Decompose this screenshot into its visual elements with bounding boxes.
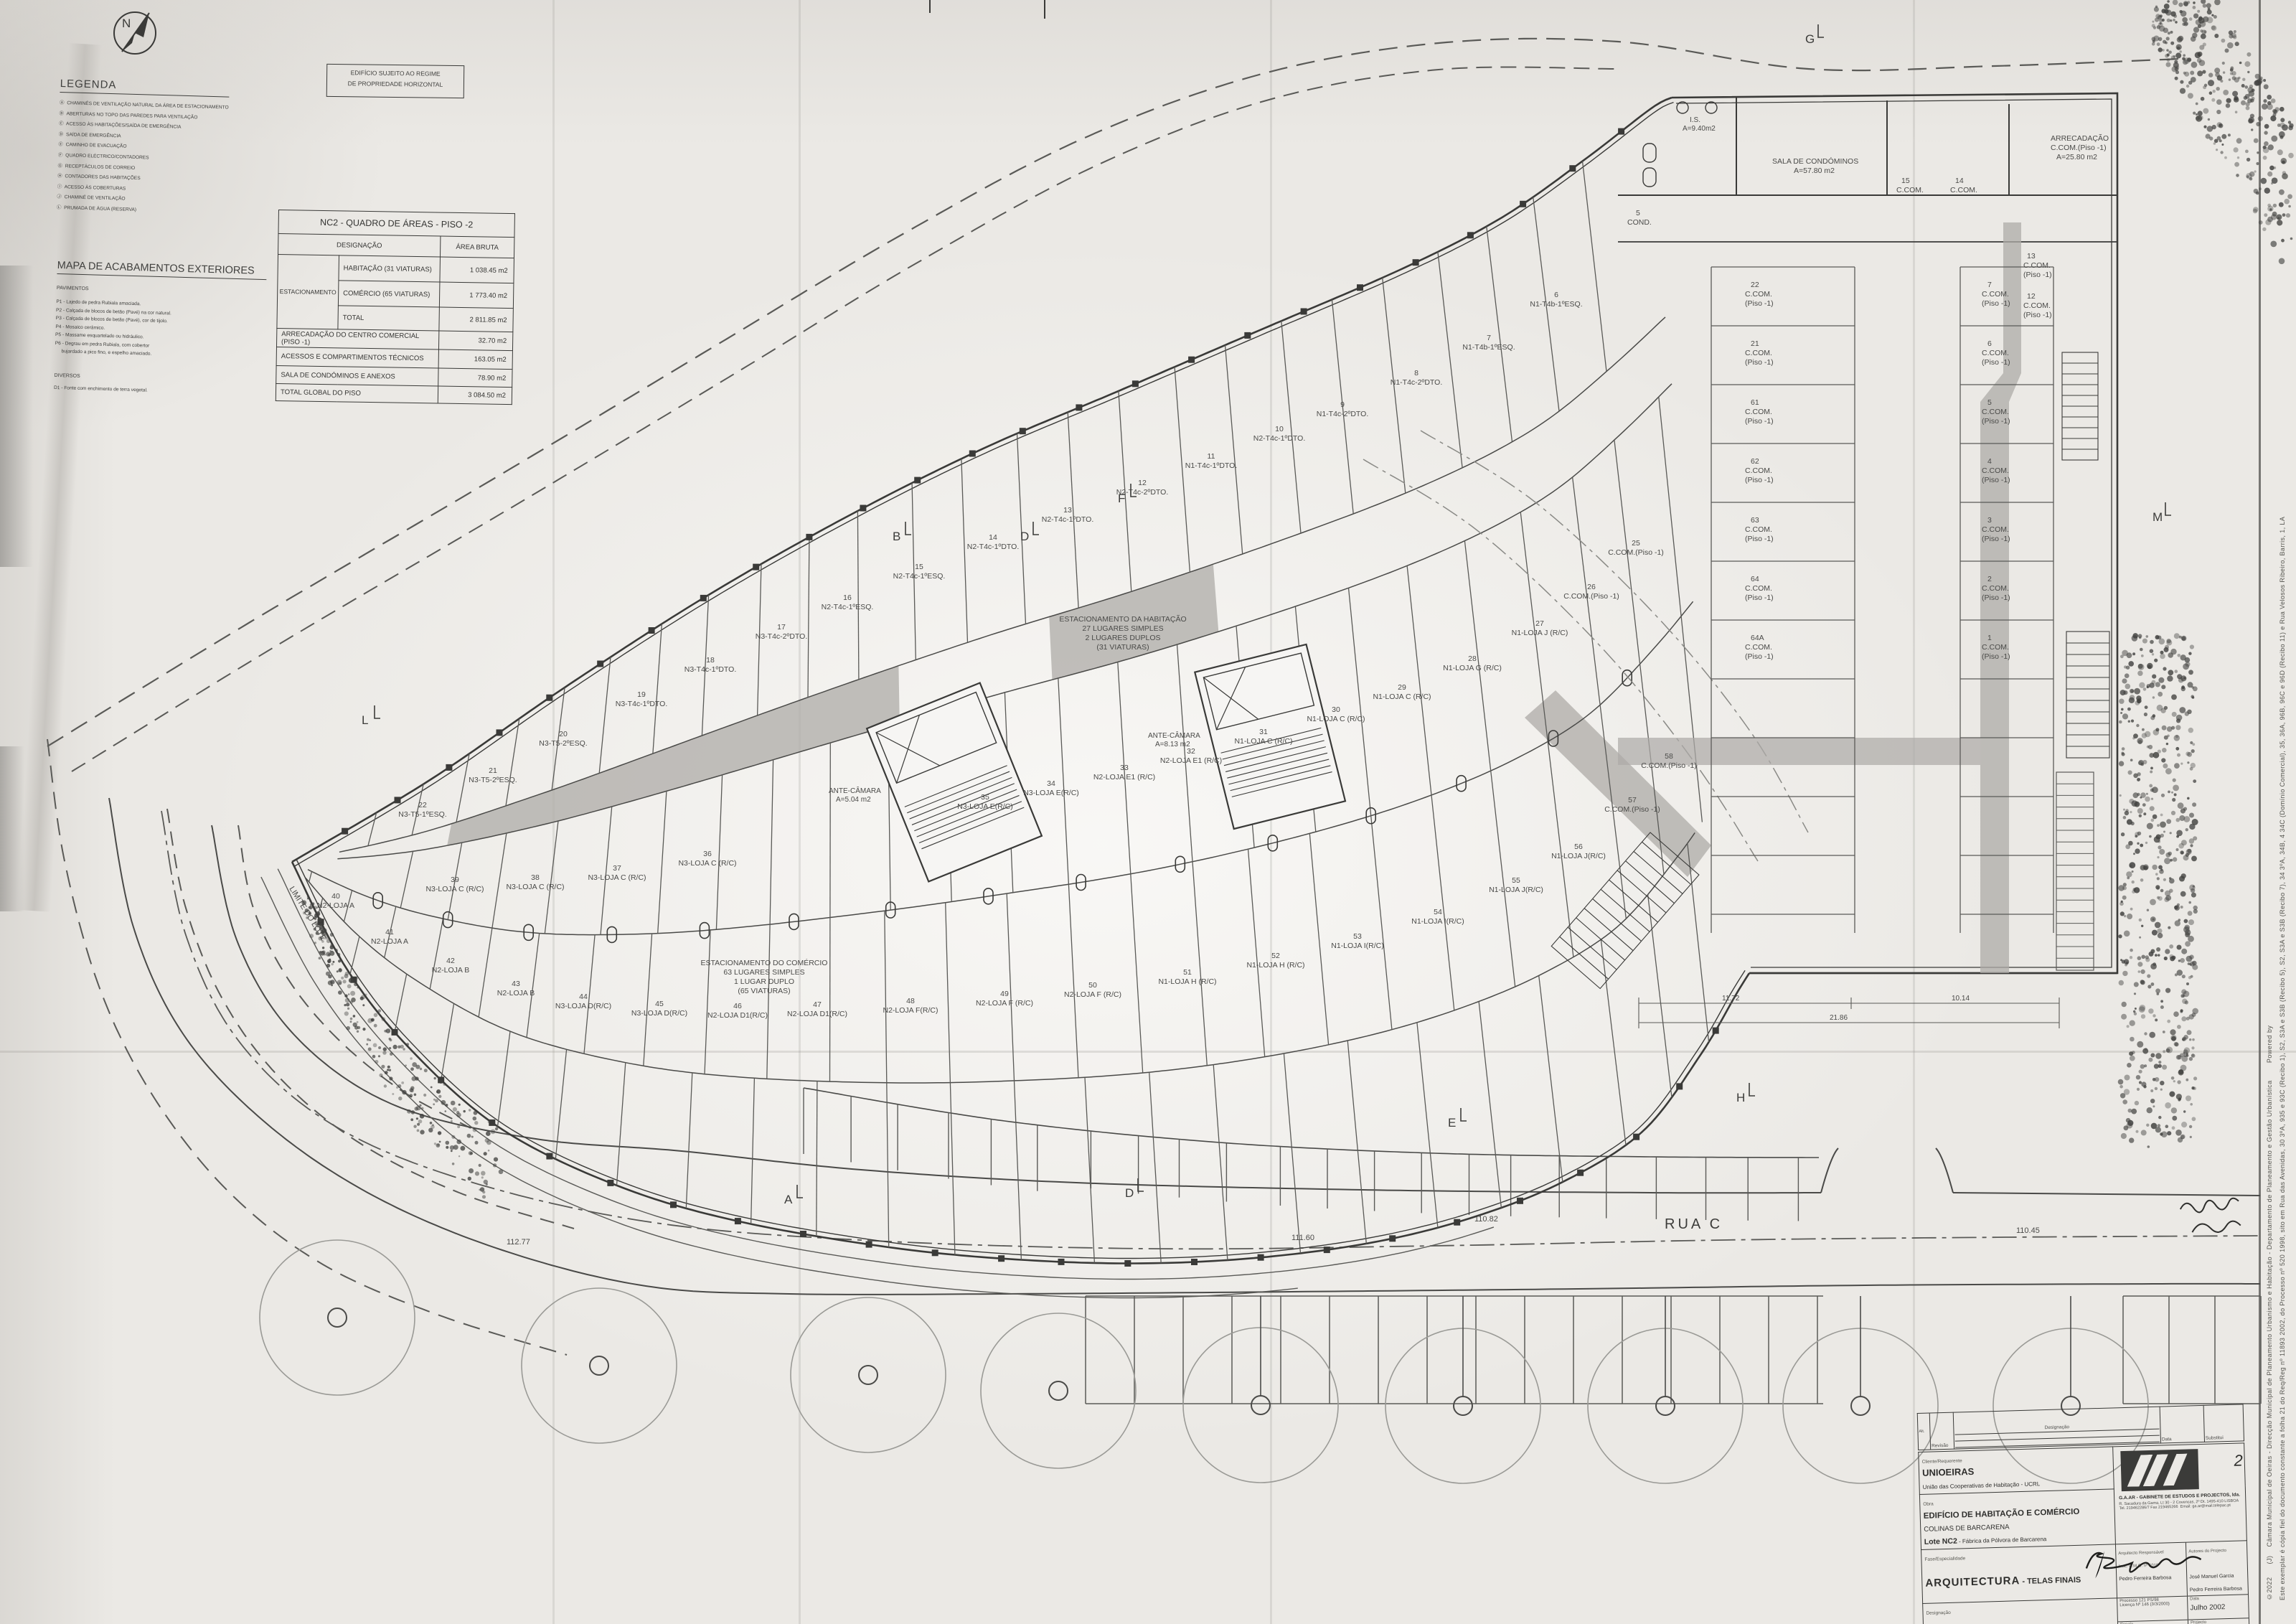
svg-text:N2-LOJA A: N2-LOJA A — [371, 937, 408, 946]
svg-text:C.COM.: C.COM. — [1982, 584, 2009, 593]
svg-text:ESTACIONAMENTO DA HABITAÇÃO: ESTACIONAMENTO DA HABITAÇÃO — [1059, 614, 1186, 624]
svg-text:14: 14 — [989, 533, 997, 542]
svg-text:C.COM.: C.COM. — [1950, 186, 1977, 194]
svg-text:30: 30 — [1332, 705, 1340, 714]
svg-text:53: 53 — [1353, 932, 1362, 941]
svg-text:11.72: 11.72 — [1722, 995, 1740, 1003]
svg-text:62: 62 — [1751, 457, 1759, 466]
svg-text:(Piso -1): (Piso -1) — [1745, 358, 1774, 367]
svg-text:N2-LOJA D1(R/C): N2-LOJA D1(R/C) — [787, 1010, 847, 1018]
svg-text:34: 34 — [1047, 779, 1055, 788]
svg-text:C.COM.(Piso -1): C.COM.(Piso -1) — [1608, 548, 1664, 557]
svg-text:A=9.40m2: A=9.40m2 — [1683, 125, 1716, 133]
svg-text:N1-LOJA C (R/C): N1-LOJA C (R/C) — [1373, 693, 1431, 701]
svg-text:22: 22 — [1751, 281, 1759, 289]
svg-text:32: 32 — [1187, 747, 1195, 756]
svg-text:N3-T4c-2ºDTO.: N3-T4c-2ºDTO. — [756, 632, 808, 641]
svg-text:C.COM.: C.COM. — [1982, 290, 2009, 299]
svg-text:N1-T4c-2ºDTO.: N1-T4c-2ºDTO. — [1317, 410, 1369, 418]
svg-text:C.COM.: C.COM. — [1745, 643, 1772, 652]
svg-text:(Piso -1): (Piso -1) — [2023, 311, 2052, 319]
svg-text:SALA DE CONDÓMINOS: SALA DE CONDÓMINOS — [1772, 156, 1858, 166]
svg-text:C.COM.: C.COM. — [1745, 466, 1772, 475]
svg-text:111.60: 111.60 — [1291, 1234, 1314, 1242]
svg-text:C.COM.: C.COM. — [1896, 186, 1924, 194]
svg-text:A=5.04 m2: A=5.04 m2 — [836, 796, 871, 804]
svg-text:N2-T4c-1ºDTO.: N2-T4c-1ºDTO. — [1042, 515, 1094, 524]
svg-text:50: 50 — [1088, 981, 1097, 990]
svg-text:2 LUGARES DUPLOS: 2 LUGARES DUPLOS — [1085, 634, 1160, 642]
svg-text:1 LUGAR DUPLO: 1 LUGAR DUPLO — [734, 977, 794, 986]
svg-text:35: 35 — [981, 793, 989, 802]
svg-text:N1-LOJA H (R/C): N1-LOJA H (R/C) — [1246, 961, 1304, 970]
svg-text:C.COM.(Piso -1): C.COM.(Piso -1) — [1604, 805, 1660, 814]
svg-text:C.COM.: C.COM. — [1982, 349, 2009, 357]
svg-text:N1-T4c-2ºDTO.: N1-T4c-2ºDTO. — [1391, 378, 1443, 387]
svg-text:21.86: 21.86 — [1830, 1014, 1848, 1022]
svg-text:54: 54 — [1434, 908, 1442, 916]
svg-text:C.COM.(Piso -1): C.COM.(Piso -1) — [2051, 144, 2107, 152]
svg-text:N1-T4c-1ºDTO.: N1-T4c-1ºDTO. — [1185, 461, 1238, 470]
svg-text:N2-LOJA F (R/C): N2-LOJA F (R/C) — [1064, 990, 1121, 999]
svg-text:N3-T4c-1ºDTO.: N3-T4c-1ºDTO. — [684, 665, 737, 674]
svg-text:N1-T4b-1ºESQ.: N1-T4b-1ºESQ. — [1462, 343, 1515, 352]
svg-text:B: B — [893, 530, 900, 543]
svg-text:(Piso -1): (Piso -1) — [1982, 417, 2010, 426]
svg-text:3: 3 — [1987, 516, 1992, 525]
svg-text:29: 29 — [1398, 683, 1406, 692]
svg-text:1: 1 — [1987, 634, 1992, 642]
svg-text:N2-LOJA E1 (R/C): N2-LOJA E1 (R/C) — [1160, 756, 1222, 765]
svg-text:N1-LOJA J(R/C): N1-LOJA J(R/C) — [1551, 852, 1606, 860]
svg-text:56: 56 — [1574, 842, 1583, 851]
svg-text:N2-LOJA B: N2-LOJA B — [432, 966, 470, 975]
svg-text:12: 12 — [1138, 479, 1147, 487]
svg-text:(Piso -1): (Piso -1) — [1982, 652, 2010, 661]
svg-text:H: H — [1736, 1091, 1745, 1104]
svg-text:N3-LOJA C (R/C): N3-LOJA C (R/C) — [425, 885, 484, 893]
svg-text:(Piso -1): (Piso -1) — [1745, 593, 1774, 602]
svg-text:C.COM.: C.COM. — [1982, 408, 2009, 416]
svg-text:N2-LOJA E1 (R/C): N2-LOJA E1 (R/C) — [1093, 773, 1155, 782]
svg-text:N3-LOJA C (R/C): N3-LOJA C (R/C) — [588, 873, 646, 882]
svg-text:5: 5 — [1987, 398, 1992, 407]
svg-text:44: 44 — [579, 992, 588, 1001]
svg-text:COND.: COND. — [1627, 218, 1652, 227]
svg-text:48: 48 — [906, 997, 915, 1005]
svg-text:(Piso -1): (Piso -1) — [1745, 299, 1774, 308]
svg-text:9: 9 — [1340, 400, 1345, 409]
svg-text:N1-T4b-1ºESQ.: N1-T4b-1ºESQ. — [1530, 300, 1582, 309]
svg-text:C.COM.: C.COM. — [1982, 466, 2009, 475]
svg-text:N3-LOJA D(R/C): N3-LOJA D(R/C) — [631, 1009, 687, 1018]
svg-text:C.COM.: C.COM. — [1745, 525, 1772, 534]
svg-text:10: 10 — [1275, 425, 1284, 433]
svg-text:5: 5 — [1636, 209, 1640, 217]
svg-text:13: 13 — [2027, 252, 2036, 261]
svg-text:C.COM.: C.COM. — [1745, 584, 1772, 593]
svg-text:41: 41 — [385, 928, 394, 937]
svg-text:43: 43 — [512, 980, 520, 988]
svg-text:27: 27 — [1535, 619, 1544, 628]
svg-text:N3-T4c-1ºDTO.: N3-T4c-1ºDTO. — [616, 700, 668, 708]
svg-text:N3-LOJA E(R/C): N3-LOJA E(R/C) — [1023, 789, 1079, 797]
svg-text:(Piso -1): (Piso -1) — [1745, 652, 1774, 661]
svg-text:16: 16 — [843, 593, 852, 602]
svg-text:22: 22 — [418, 801, 427, 809]
svg-text:A: A — [784, 1193, 793, 1206]
svg-text:13: 13 — [1063, 506, 1072, 515]
svg-text:RUA C: RUA C — [1665, 1216, 1723, 1232]
svg-text:L: L — [362, 713, 368, 727]
svg-text:C.COM.: C.COM. — [1745, 408, 1772, 416]
svg-text:61: 61 — [1751, 398, 1759, 407]
svg-text:112.77: 112.77 — [507, 1238, 530, 1247]
svg-text:C.COM.: C.COM. — [1982, 525, 2009, 534]
svg-text:47: 47 — [813, 1000, 822, 1009]
svg-text:(Piso -1): (Piso -1) — [1982, 593, 2010, 602]
svg-text:N1-LOJA H (R/C): N1-LOJA H (R/C) — [1158, 977, 1216, 986]
svg-text:A=25.80 m2: A=25.80 m2 — [2056, 153, 2097, 161]
svg-text:40: 40 — [331, 892, 340, 901]
svg-text:N2-T4c-1ºESQ.: N2-T4c-1ºESQ. — [822, 603, 874, 611]
svg-text:6: 6 — [1554, 291, 1558, 299]
svg-text:C.COM.: C.COM. — [2023, 301, 2051, 310]
svg-text:(Piso -1): (Piso -1) — [1745, 476, 1774, 484]
svg-text:N2-T4c-1ºESQ.: N2-T4c-1ºESQ. — [893, 572, 946, 581]
svg-text:110.45: 110.45 — [2016, 1226, 2040, 1235]
svg-text:39: 39 — [451, 876, 459, 884]
svg-text:37: 37 — [613, 864, 621, 873]
svg-text:D: D — [1020, 530, 1029, 543]
svg-text:(65 VIATURAS): (65 VIATURAS) — [738, 987, 790, 995]
svg-text:N2-LOJA D1(R/C): N2-LOJA D1(R/C) — [707, 1011, 768, 1020]
svg-text:64A: 64A — [1751, 634, 1764, 642]
svg-text:N3-T5-1ºESQ.: N3-T5-1ºESQ. — [398, 810, 446, 819]
svg-text:15: 15 — [1901, 177, 1910, 185]
svg-text:C.COM.(Piso -1): C.COM.(Piso -1) — [1563, 592, 1619, 601]
svg-text:11: 11 — [1208, 452, 1215, 461]
svg-text:N3-LOJA C (R/C): N3-LOJA C (R/C) — [678, 859, 736, 868]
svg-text:8: 8 — [1414, 369, 1418, 377]
svg-text:12: 12 — [2027, 292, 2036, 301]
svg-text:(Piso -1): (Piso -1) — [1982, 476, 2010, 484]
svg-text:28: 28 — [1468, 654, 1477, 663]
svg-text:63 LUGARES SIMPLES: 63 LUGARES SIMPLES — [723, 968, 804, 977]
svg-text:D: D — [1125, 1186, 1134, 1200]
svg-text:7: 7 — [1987, 281, 1992, 289]
svg-text:57: 57 — [1628, 796, 1637, 804]
svg-text:C.COM.: C.COM. — [2023, 261, 2051, 270]
svg-text:7: 7 — [1487, 334, 1491, 342]
svg-text:42: 42 — [446, 957, 455, 965]
svg-text:19: 19 — [637, 690, 646, 699]
svg-text:63: 63 — [1751, 516, 1759, 525]
svg-text:14: 14 — [1955, 177, 1964, 185]
svg-text:(Piso -1): (Piso -1) — [1982, 299, 2010, 308]
svg-text:(Piso -1): (Piso -1) — [1745, 417, 1774, 426]
svg-text:(Piso -1): (Piso -1) — [1982, 535, 2010, 543]
svg-text:(Piso -1): (Piso -1) — [1745, 535, 1774, 543]
svg-text:F: F — [1118, 492, 1125, 505]
svg-text:N1-LOJA J(R/C): N1-LOJA J(R/C) — [1489, 886, 1543, 894]
svg-text:17: 17 — [777, 623, 786, 632]
svg-text:N2-LOJA B: N2-LOJA B — [497, 989, 535, 998]
svg-text:N3-LOJA E(R/C): N3-LOJA E(R/C) — [957, 802, 1013, 811]
svg-text:52: 52 — [1271, 952, 1280, 960]
svg-text:ANTE-CÂMARA: ANTE-CÂMARA — [829, 786, 881, 795]
svg-text:N3-T5-2ºESQ.: N3-T5-2ºESQ. — [469, 776, 517, 784]
svg-text:C.COM.: C.COM. — [1745, 349, 1772, 357]
svg-text:N1-LOJA G (R/C): N1-LOJA G (R/C) — [1443, 664, 1502, 672]
svg-text:21: 21 — [1751, 339, 1759, 348]
svg-text:N2-T4c-1ºDTO.: N2-T4c-1ºDTO. — [967, 543, 1020, 551]
svg-text:36: 36 — [703, 850, 712, 858]
svg-text:21: 21 — [489, 766, 497, 775]
svg-text:N3-T5-2ºESQ.: N3-T5-2ºESQ. — [539, 739, 587, 748]
svg-text:N1-LOJA C (R/C): N1-LOJA C (R/C) — [1307, 715, 1365, 723]
svg-text:N3-LOJA C (R/C): N3-LOJA C (R/C) — [506, 883, 564, 891]
svg-text:N2-LOJA A: N2-LOJA A — [317, 901, 354, 910]
svg-text:49: 49 — [1000, 990, 1009, 998]
svg-text:6: 6 — [1987, 339, 1992, 348]
svg-text:ARRECADAÇÃO: ARRECADAÇÃO — [2051, 133, 2109, 143]
svg-text:(31 VIATURAS): (31 VIATURAS) — [1096, 643, 1149, 652]
svg-text:N: N — [122, 17, 131, 30]
svg-text:I.S.: I.S. — [1690, 116, 1700, 124]
svg-text:ANTE-CÂMARA: ANTE-CÂMARA — [1148, 731, 1200, 740]
svg-text:ESTACIONAMENTO DO COMÉRCIO: ESTACIONAMENTO DO COMÉRCIO — [701, 958, 828, 967]
svg-text:N2-T4c-1ºDTO.: N2-T4c-1ºDTO. — [1253, 434, 1306, 443]
svg-text:E: E — [1448, 1116, 1456, 1130]
svg-text:4: 4 — [1987, 457, 1992, 466]
svg-text:N2-LOJA F(R/C): N2-LOJA F(R/C) — [883, 1006, 938, 1015]
svg-text:27 LUGARES SIMPLES: 27 LUGARES SIMPLES — [1082, 624, 1163, 633]
svg-text:C.COM.: C.COM. — [1745, 290, 1772, 299]
svg-text:38: 38 — [531, 873, 540, 882]
svg-text:A=57.80 m2: A=57.80 m2 — [1794, 166, 1835, 175]
svg-text:G: G — [1805, 32, 1815, 46]
svg-text:25: 25 — [1632, 539, 1640, 548]
svg-text:18: 18 — [706, 656, 715, 665]
svg-text:64: 64 — [1751, 575, 1759, 583]
svg-text:46: 46 — [733, 1002, 742, 1010]
svg-text:31: 31 — [1259, 728, 1268, 736]
svg-text:45: 45 — [655, 1000, 664, 1008]
svg-text:C.COM.: C.COM. — [1982, 643, 2009, 652]
svg-text:2: 2 — [1987, 575, 1992, 583]
svg-text:33: 33 — [1120, 764, 1129, 772]
svg-text:A=8.13 m2: A=8.13 m2 — [1155, 741, 1190, 748]
svg-text:N1-LOJA I(R/C): N1-LOJA I(R/C) — [1331, 942, 1384, 950]
svg-text:C.COM.(Piso -1): C.COM.(Piso -1) — [1641, 761, 1697, 770]
svg-text:N1-LOJA J (R/C): N1-LOJA J (R/C) — [1512, 629, 1568, 637]
svg-text:20: 20 — [559, 730, 568, 738]
svg-text:26: 26 — [1587, 583, 1596, 591]
svg-text:15: 15 — [915, 563, 923, 571]
svg-text:N3-LOJA D(R/C): N3-LOJA D(R/C) — [555, 1002, 611, 1010]
svg-text:M: M — [2152, 510, 2163, 524]
svg-text:(Piso -1): (Piso -1) — [2023, 271, 2052, 279]
svg-text:N2-LOJA F (R/C): N2-LOJA F (R/C) — [976, 999, 1033, 1008]
svg-text:(Piso -1): (Piso -1) — [1982, 358, 2010, 367]
svg-text:55: 55 — [1512, 876, 1520, 885]
svg-text:51: 51 — [1183, 968, 1192, 977]
svg-text:58: 58 — [1665, 752, 1673, 761]
svg-text:N1-LOJA C (R/C): N1-LOJA C (R/C) — [1234, 737, 1292, 746]
svg-text:N1-LOJA I(R/C): N1-LOJA I(R/C) — [1411, 917, 1464, 926]
svg-text:10.14: 10.14 — [1952, 995, 1970, 1003]
